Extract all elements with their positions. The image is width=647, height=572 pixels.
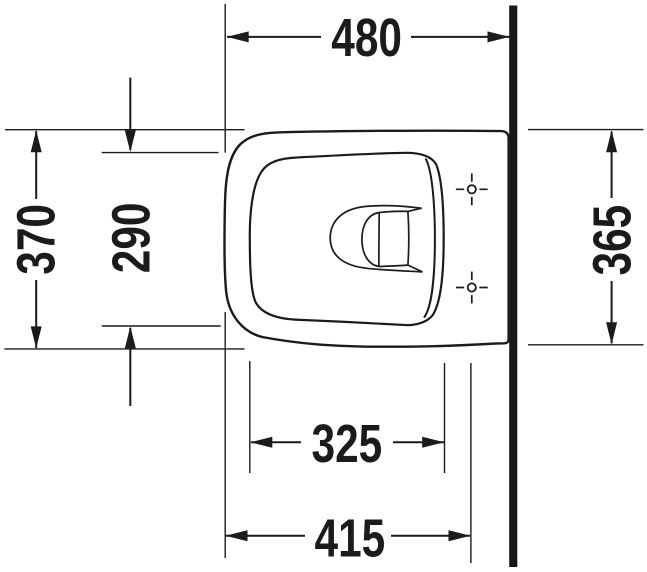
svg-text:365: 365	[582, 205, 642, 276]
svg-text:480: 480	[331, 8, 402, 68]
svg-text:370: 370	[7, 204, 67, 275]
svg-text:290: 290	[102, 203, 162, 274]
svg-text:325: 325	[312, 414, 383, 474]
svg-text:415: 415	[315, 508, 386, 568]
